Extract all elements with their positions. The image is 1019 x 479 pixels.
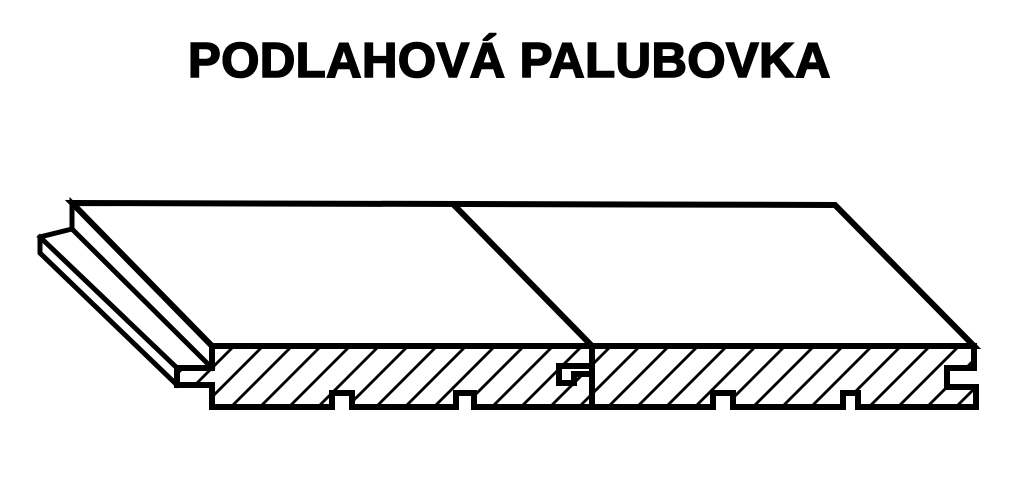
board2-cross-section	[592, 346, 976, 407]
board1-cross-section	[177, 346, 592, 407]
page: PODLAHOVÁ PALUBOVKA	[0, 0, 1019, 479]
floorboard-drawing	[0, 0, 1019, 479]
